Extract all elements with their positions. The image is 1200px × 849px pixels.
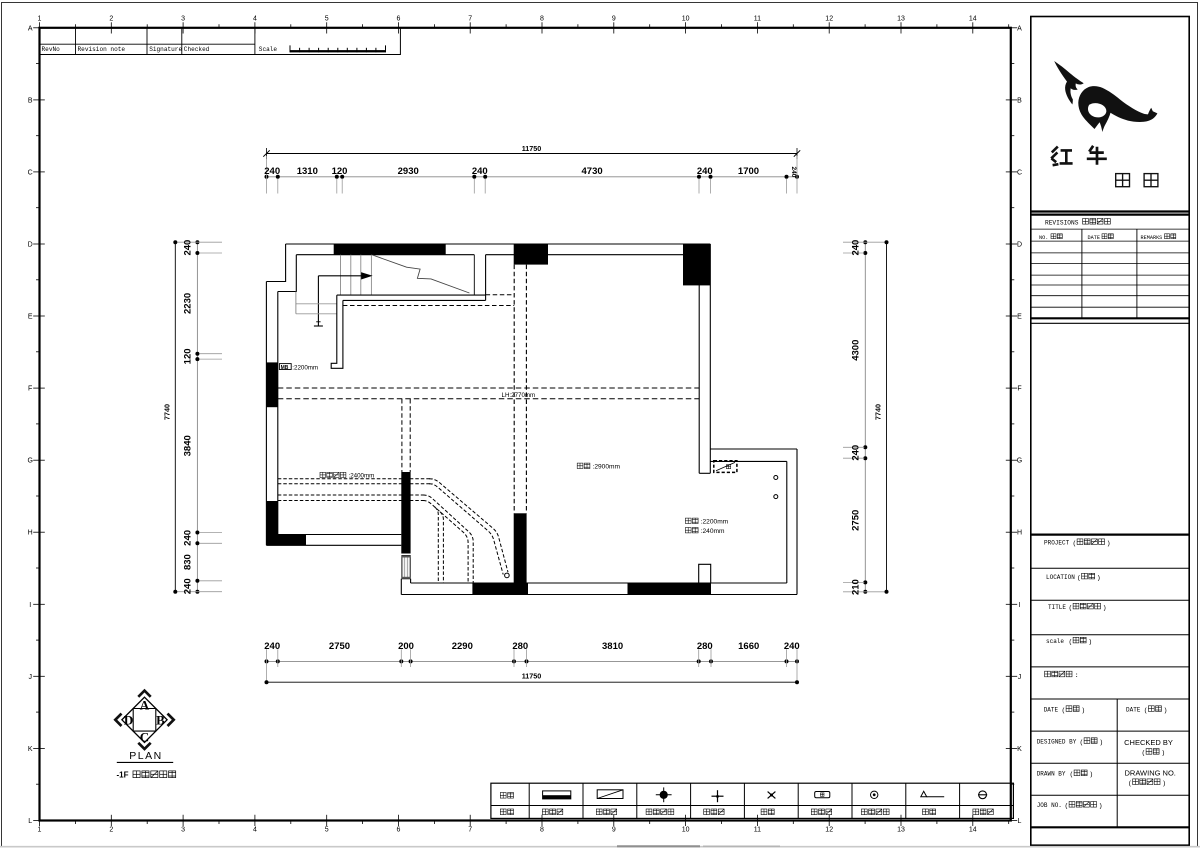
svg-text:C: C bbox=[140, 729, 149, 744]
svg-text:14: 14 bbox=[969, 827, 977, 834]
svg-text:): ) bbox=[1099, 739, 1103, 746]
svg-text:(: ( bbox=[1077, 574, 1081, 581]
svg-text:): ) bbox=[1107, 540, 1111, 547]
svg-text:G: G bbox=[1017, 458, 1022, 465]
svg-text:PROJECT: PROJECT bbox=[1044, 540, 1070, 547]
svg-text:2: 2 bbox=[109, 827, 113, 834]
svg-text:Signature: Signature bbox=[149, 46, 182, 53]
svg-text:A: A bbox=[140, 697, 150, 712]
svg-text:10: 10 bbox=[682, 16, 690, 23]
svg-text:9: 9 bbox=[612, 16, 616, 23]
svg-text:4: 4 bbox=[253, 16, 257, 23]
svg-text:MB: MB bbox=[281, 365, 289, 371]
svg-text:1: 1 bbox=[38, 827, 42, 834]
svg-text:4730: 4730 bbox=[582, 166, 603, 177]
svg-text:280: 280 bbox=[512, 641, 528, 652]
svg-text:F: F bbox=[28, 386, 32, 393]
svg-text:2750: 2750 bbox=[851, 510, 862, 531]
svg-text:1660: 1660 bbox=[738, 641, 759, 652]
svg-text:240: 240 bbox=[851, 240, 862, 256]
svg-text:Scale: Scale bbox=[259, 46, 278, 53]
svg-text:): ) bbox=[1161, 750, 1165, 757]
svg-text::2200mm: :2200mm bbox=[292, 364, 318, 371]
svg-text:H: H bbox=[1017, 530, 1022, 537]
svg-text:210: 210 bbox=[851, 579, 862, 595]
svg-text:240: 240 bbox=[697, 166, 713, 177]
svg-text:I: I bbox=[1019, 602, 1021, 609]
svg-text::2900mm: :2900mm bbox=[593, 464, 621, 471]
svg-text:3: 3 bbox=[181, 16, 185, 23]
svg-text:): ) bbox=[1103, 604, 1107, 611]
svg-text:(: ( bbox=[1128, 780, 1132, 787]
svg-text:LH:2770mm: LH:2770mm bbox=[502, 392, 536, 399]
svg-text:7740: 7740 bbox=[874, 404, 883, 420]
svg-text:8: 8 bbox=[540, 16, 544, 23]
svg-text:240: 240 bbox=[472, 166, 488, 177]
svg-text:JOB NO.: JOB NO. bbox=[1037, 802, 1062, 809]
svg-text:(: ( bbox=[1070, 771, 1074, 778]
svg-text:12: 12 bbox=[825, 16, 833, 23]
svg-text:): ) bbox=[1164, 707, 1168, 714]
svg-text:): ) bbox=[1097, 574, 1101, 581]
svg-text:13: 13 bbox=[897, 827, 905, 834]
svg-text:): ) bbox=[1089, 771, 1093, 778]
svg-text:C: C bbox=[1017, 169, 1022, 176]
svg-text:14: 14 bbox=[969, 16, 977, 23]
svg-text:2750: 2750 bbox=[329, 641, 350, 652]
svg-text:E: E bbox=[28, 314, 33, 321]
svg-text:C: C bbox=[28, 169, 33, 176]
svg-text:A: A bbox=[28, 25, 33, 32]
svg-text:200: 200 bbox=[398, 641, 414, 652]
svg-text:K: K bbox=[1017, 746, 1022, 753]
svg-text:240: 240 bbox=[183, 240, 194, 256]
svg-text:F: F bbox=[1017, 386, 1021, 393]
svg-text:E: E bbox=[1017, 314, 1022, 321]
svg-text:10: 10 bbox=[682, 827, 690, 834]
svg-text:13: 13 bbox=[897, 16, 905, 23]
svg-text:11: 11 bbox=[754, 16, 761, 23]
svg-text:(: ( bbox=[1062, 707, 1066, 714]
svg-text:240: 240 bbox=[183, 578, 194, 594]
svg-text:DATE: DATE bbox=[1088, 235, 1100, 241]
svg-text:D: D bbox=[28, 242, 33, 249]
svg-text:(: ( bbox=[1069, 604, 1073, 611]
svg-text:): ) bbox=[1162, 780, 1166, 787]
svg-text:830: 830 bbox=[183, 554, 194, 570]
svg-text:H: H bbox=[28, 530, 33, 537]
svg-text:RevNo: RevNo bbox=[42, 46, 61, 53]
svg-text:(: ( bbox=[1073, 540, 1077, 547]
svg-text:7: 7 bbox=[468, 16, 472, 23]
svg-text:12: 12 bbox=[825, 827, 833, 834]
svg-text:D: D bbox=[124, 713, 133, 728]
svg-text:2: 2 bbox=[109, 16, 113, 23]
svg-text:11750: 11750 bbox=[522, 144, 542, 153]
svg-text:D: D bbox=[1017, 242, 1022, 249]
svg-text:B: B bbox=[1017, 97, 1022, 104]
svg-text:(: ( bbox=[1142, 750, 1146, 757]
svg-text::: : bbox=[1075, 672, 1079, 679]
svg-text:A: A bbox=[1017, 25, 1022, 32]
svg-text:(: ( bbox=[1080, 739, 1084, 746]
svg-text:4: 4 bbox=[253, 827, 257, 834]
svg-text:11750: 11750 bbox=[522, 671, 542, 680]
svg-text:240: 240 bbox=[790, 167, 797, 178]
svg-text:7: 7 bbox=[468, 827, 472, 834]
svg-text:DRAWING NO.: DRAWING NO. bbox=[1125, 769, 1176, 778]
svg-text::240mm: :240mm bbox=[701, 528, 725, 535]
svg-text:9: 9 bbox=[612, 827, 616, 834]
svg-text:1: 1 bbox=[38, 16, 42, 23]
svg-text:PLAN: PLAN bbox=[129, 750, 162, 762]
svg-text:L: L bbox=[28, 818, 32, 825]
svg-text:2290: 2290 bbox=[452, 641, 473, 652]
svg-text:1310: 1310 bbox=[297, 166, 318, 177]
svg-text:B: B bbox=[156, 713, 165, 728]
svg-text:240: 240 bbox=[784, 641, 800, 652]
svg-text:3: 3 bbox=[181, 827, 185, 834]
svg-text:LOCATION: LOCATION bbox=[1046, 574, 1075, 581]
svg-text:1700: 1700 bbox=[738, 166, 759, 177]
svg-text:CHECKED BY: CHECKED BY bbox=[1124, 738, 1173, 747]
svg-text:280: 280 bbox=[697, 641, 713, 652]
svg-text:REVISIONS: REVISIONS bbox=[1045, 220, 1079, 227]
svg-text:DRAWN BY: DRAWN BY bbox=[1037, 771, 1066, 778]
svg-text:L: L bbox=[1018, 818, 1022, 825]
svg-text:scale: scale bbox=[1046, 638, 1064, 645]
svg-text:B: B bbox=[28, 97, 33, 104]
svg-text:J: J bbox=[28, 674, 32, 681]
svg-text:240: 240 bbox=[264, 641, 280, 652]
svg-text:120: 120 bbox=[332, 166, 348, 177]
svg-text:): ) bbox=[1099, 803, 1103, 810]
svg-text:6: 6 bbox=[397, 16, 401, 23]
svg-text:NO.: NO. bbox=[1039, 235, 1048, 241]
svg-text:3810: 3810 bbox=[602, 641, 623, 652]
svg-text:(: ( bbox=[1065, 803, 1069, 810]
svg-text:240: 240 bbox=[264, 166, 280, 177]
svg-text:(: ( bbox=[1069, 638, 1073, 645]
svg-text:TITLE: TITLE bbox=[1048, 604, 1066, 611]
svg-text:240: 240 bbox=[183, 530, 194, 546]
svg-text:REMARKS: REMARKS bbox=[1141, 235, 1163, 241]
svg-text:Revision note: Revision note bbox=[78, 46, 126, 53]
svg-text:2230: 2230 bbox=[183, 293, 194, 314]
svg-text:DESIGNED BY: DESIGNED BY bbox=[1037, 739, 1077, 746]
svg-text::2200mm: :2200mm bbox=[701, 519, 729, 526]
svg-text:): ) bbox=[1081, 707, 1085, 714]
svg-text:-1F: -1F bbox=[117, 770, 129, 779]
svg-text:11: 11 bbox=[754, 827, 761, 834]
svg-text:7740: 7740 bbox=[163, 404, 172, 420]
svg-text:K: K bbox=[28, 746, 33, 753]
svg-text:DATE: DATE bbox=[1126, 707, 1141, 714]
svg-text:(: ( bbox=[1144, 707, 1148, 714]
svg-text:Checked: Checked bbox=[184, 46, 210, 53]
svg-text:G: G bbox=[27, 458, 32, 465]
svg-text:I: I bbox=[29, 602, 31, 609]
svg-text:2930: 2930 bbox=[398, 166, 419, 177]
svg-text:6: 6 bbox=[397, 827, 401, 834]
svg-text:8: 8 bbox=[540, 827, 544, 834]
svg-text:5: 5 bbox=[325, 827, 329, 834]
svg-text:3840: 3840 bbox=[183, 435, 194, 456]
svg-text:): ) bbox=[1088, 638, 1092, 645]
svg-text:4300: 4300 bbox=[851, 340, 862, 361]
svg-text:J: J bbox=[1018, 674, 1022, 681]
svg-text:DATE: DATE bbox=[1044, 707, 1059, 714]
svg-text:120: 120 bbox=[183, 348, 194, 364]
svg-text:240: 240 bbox=[851, 445, 862, 461]
svg-text:5: 5 bbox=[325, 16, 329, 23]
